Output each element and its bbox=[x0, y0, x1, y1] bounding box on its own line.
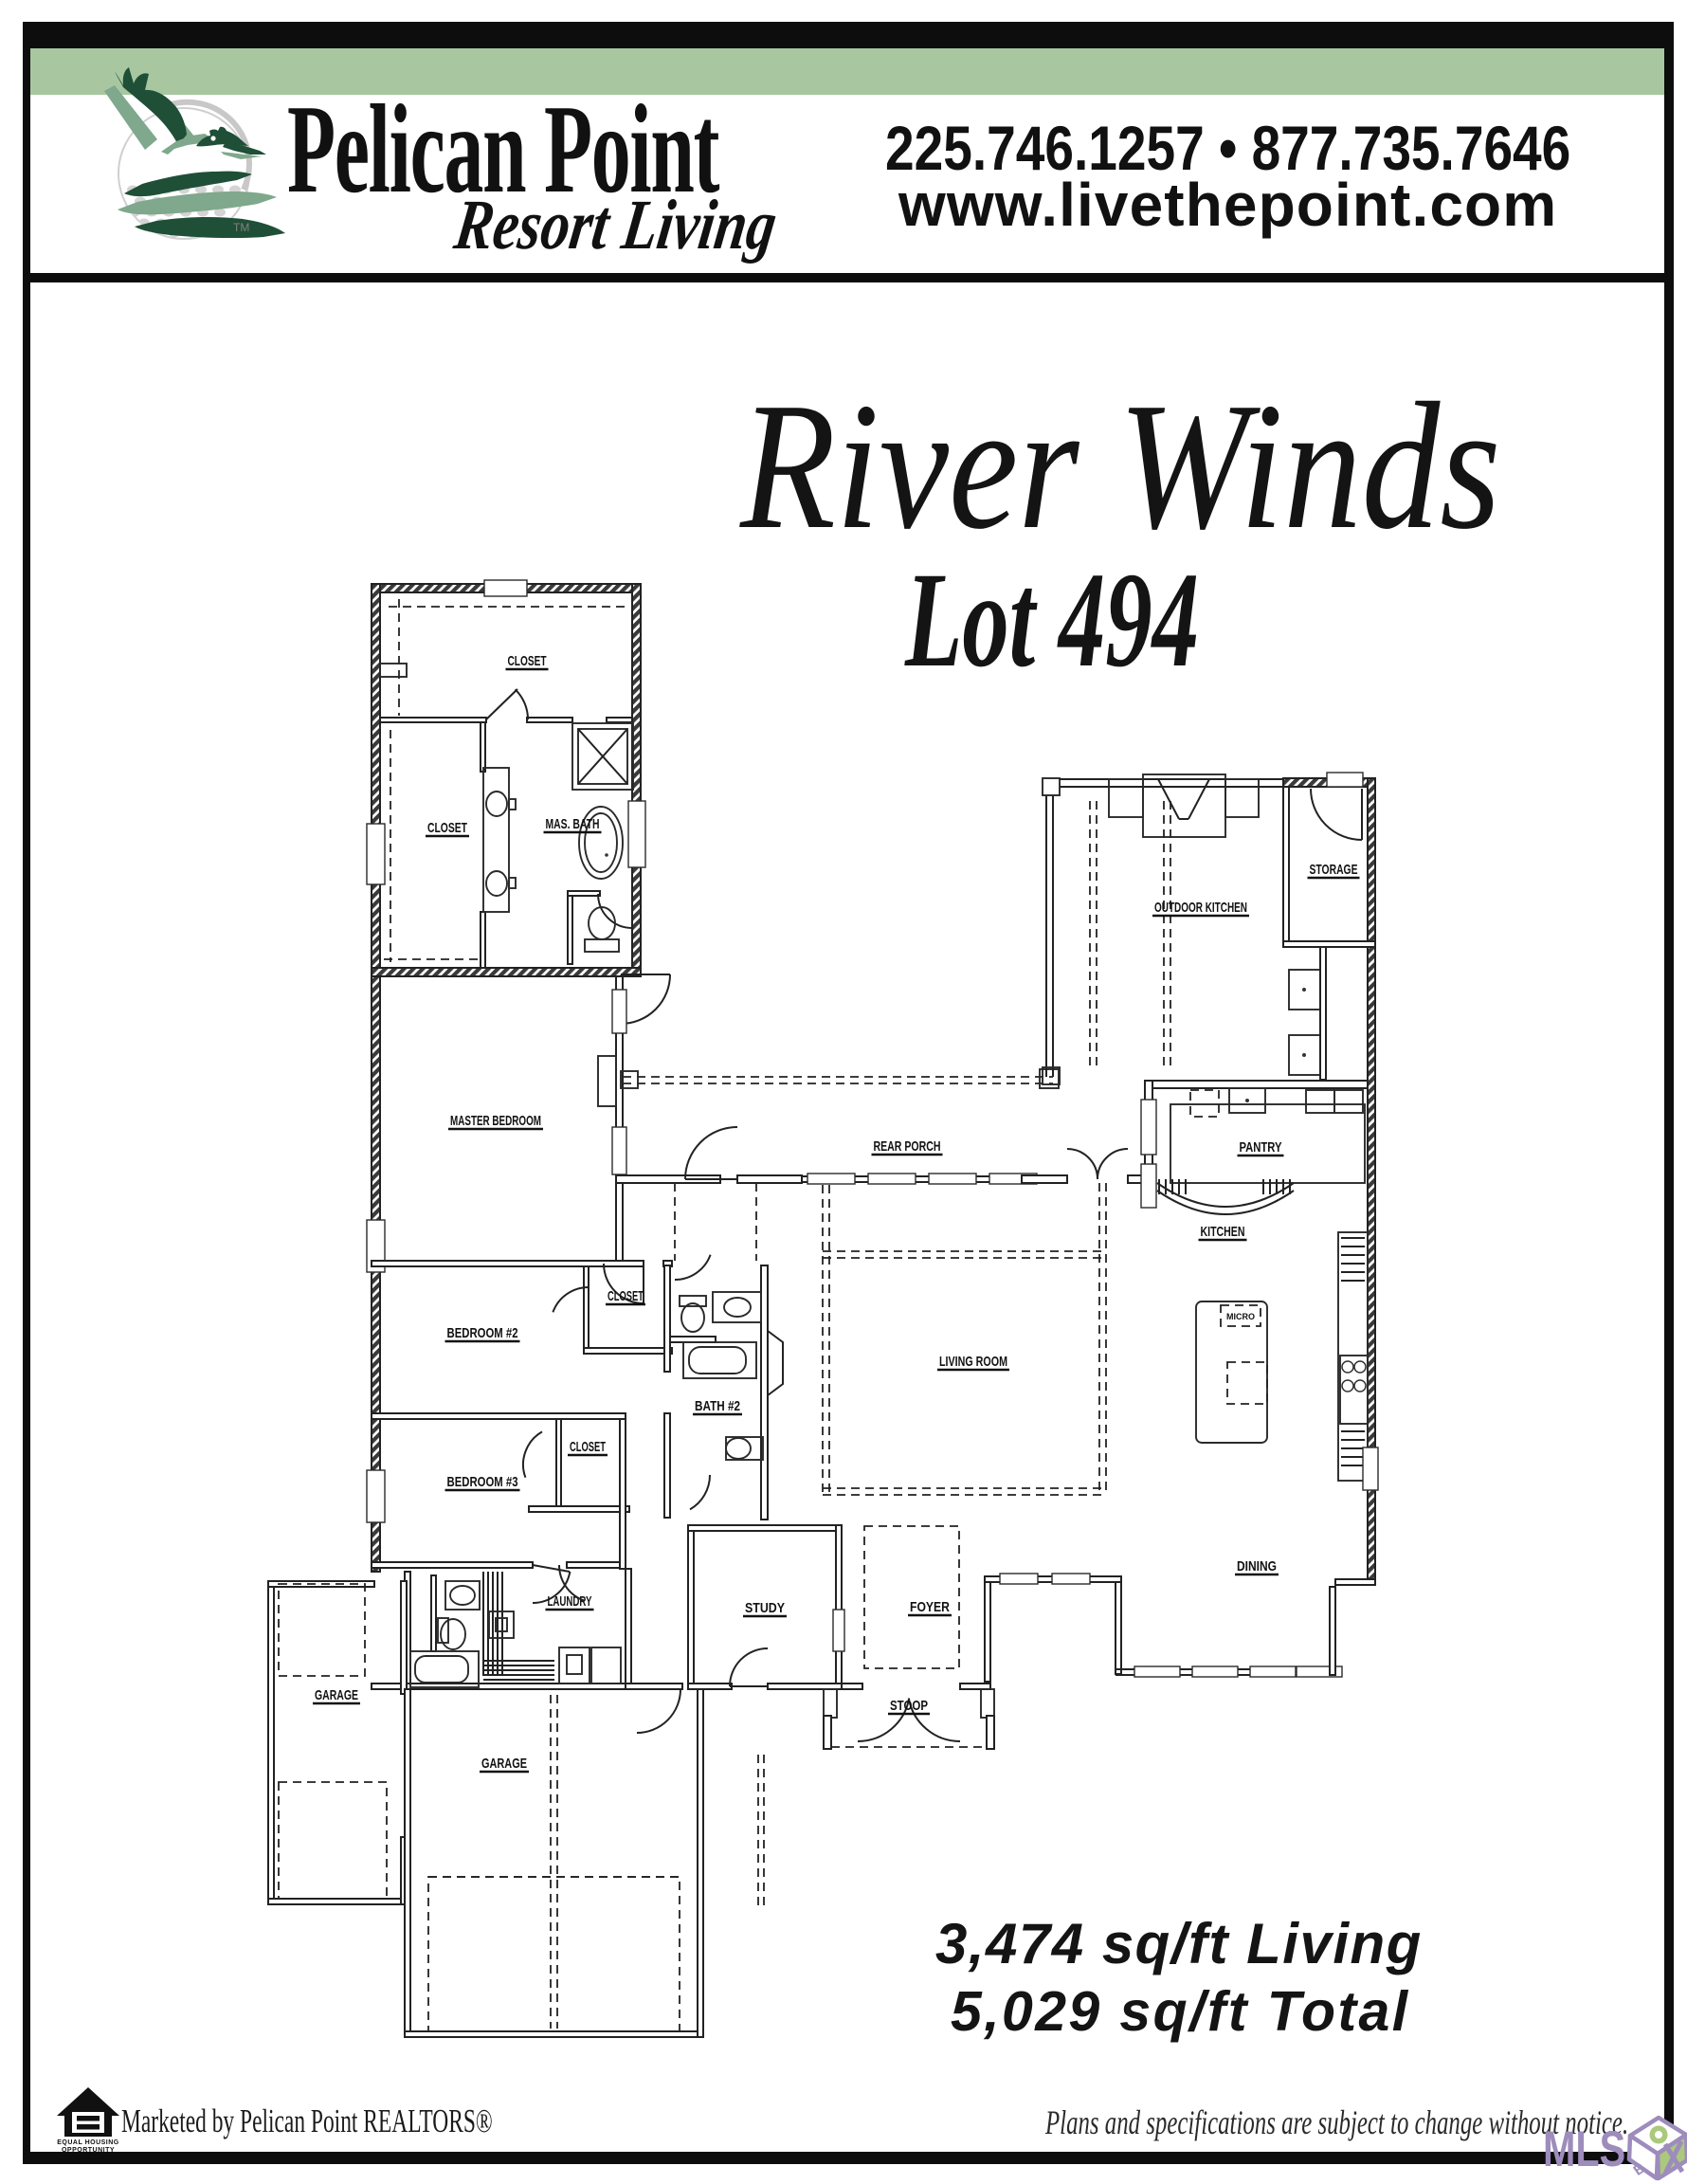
svg-text:MAS. BATH: MAS. BATH bbox=[546, 816, 600, 832]
svg-text:OUTDOOR KITCHEN: OUTDOOR KITCHEN bbox=[1154, 900, 1247, 916]
svg-text:KITCHEN: KITCHEN bbox=[1201, 1224, 1245, 1240]
svg-text:CLOSET: CLOSET bbox=[570, 1439, 606, 1455]
svg-text:CLOSET: CLOSET bbox=[608, 1288, 644, 1304]
svg-text:CLOSET: CLOSET bbox=[508, 653, 547, 669]
svg-text:BEDROOM #3: BEDROOM #3 bbox=[447, 1474, 518, 1490]
svg-text:BATH #2: BATH #2 bbox=[695, 1398, 740, 1414]
svg-text:STORAGE: STORAGE bbox=[1310, 862, 1358, 878]
svg-text:MASTER BEDROOM: MASTER BEDROOM bbox=[450, 1113, 541, 1129]
svg-text:PANTRY: PANTRY bbox=[1240, 1139, 1282, 1156]
svg-text:LAUNDRY: LAUNDRY bbox=[548, 1593, 592, 1610]
svg-text:GARAGE: GARAGE bbox=[315, 1687, 358, 1703]
svg-text:LIVING ROOM: LIVING ROOM bbox=[939, 1354, 1007, 1370]
svg-text:GARAGE: GARAGE bbox=[481, 1756, 527, 1772]
svg-text:CLOSET: CLOSET bbox=[427, 820, 467, 836]
svg-text:STOOP: STOOP bbox=[890, 1698, 928, 1714]
svg-text:MICRO: MICRO bbox=[1226, 1312, 1255, 1321]
svg-text:BEDROOM #2: BEDROOM #2 bbox=[447, 1325, 518, 1341]
svg-text:STUDY: STUDY bbox=[745, 1600, 785, 1616]
svg-text:REAR PORCH: REAR PORCH bbox=[874, 1138, 941, 1155]
svg-text:FOYER: FOYER bbox=[910, 1599, 950, 1615]
svg-text:DINING: DINING bbox=[1237, 1558, 1277, 1574]
